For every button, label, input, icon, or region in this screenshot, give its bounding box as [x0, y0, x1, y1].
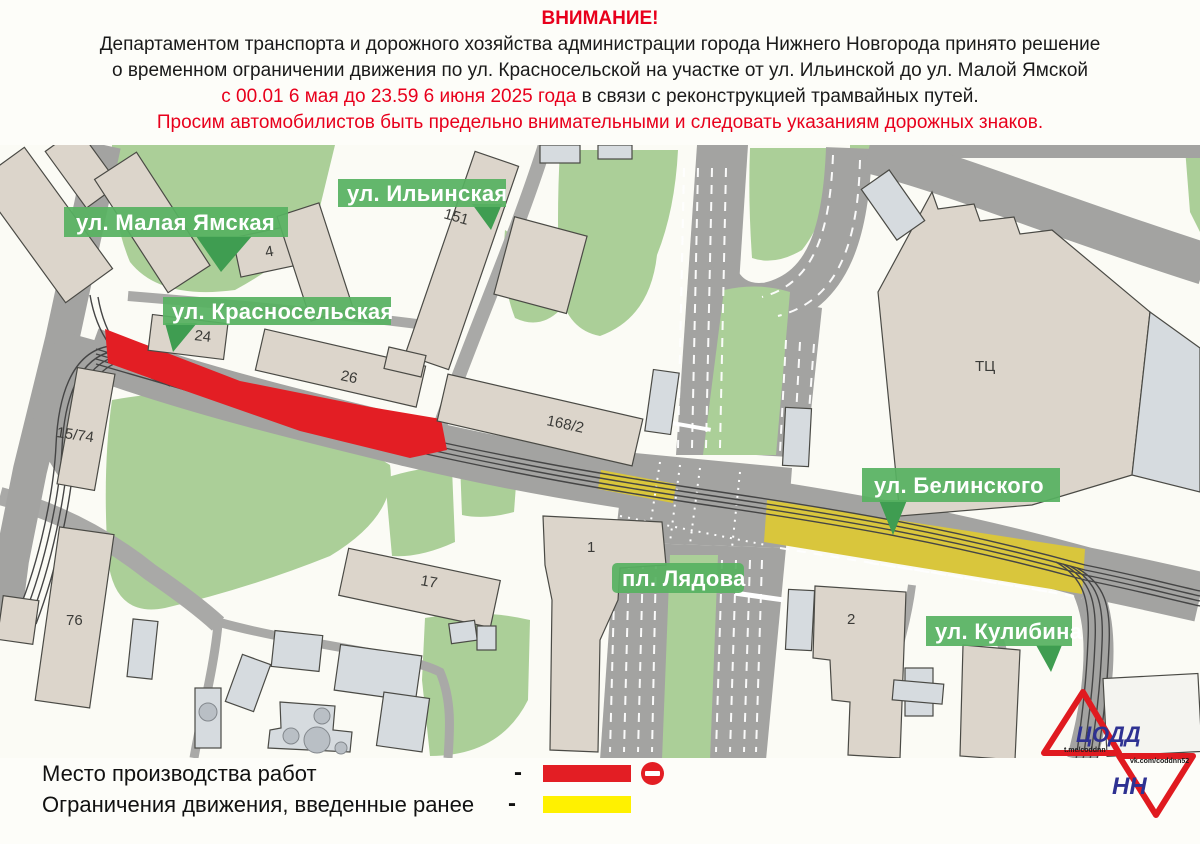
building	[271, 631, 323, 672]
logo-vk: vk.com/coddnn52	[1130, 758, 1189, 765]
legend-dash: -	[508, 790, 516, 818]
building-number-tc: ТЦ	[975, 358, 995, 375]
building	[540, 145, 580, 163]
legend-label-closure: Место производства работ	[42, 761, 317, 787]
building	[785, 589, 814, 650]
legend-swatch-closure	[543, 765, 631, 782]
logo-org-name: ЦОДД	[1076, 722, 1141, 747]
building-number: 24	[194, 327, 213, 346]
building	[960, 645, 1020, 760]
road-closure-map: 151 4 24 26 15/74 168/2 76 17 1 2 ТЦ ул.…	[0, 0, 1200, 844]
svg-text:пл. Лядова: пл. Лядова	[622, 566, 746, 591]
legend-dash: -	[514, 759, 522, 787]
svg-text:ул. Кулибина: ул. Кулибина	[935, 619, 1083, 644]
building-number: 1	[587, 539, 595, 556]
building	[477, 626, 496, 650]
building-number: 17	[419, 572, 438, 592]
no-entry-icon	[641, 762, 664, 785]
svg-text:ул. Малая Ямская: ул. Малая Ямская	[76, 210, 275, 235]
street-label-lyadova: пл. Лядова	[612, 563, 746, 593]
building	[598, 145, 632, 159]
logo-telegram: t.me/coddnn	[1064, 747, 1106, 754]
legend-label-restriction: Ограничения движения, введенные ранее	[42, 792, 474, 818]
svg-text:ул. Белинского: ул. Белинского	[874, 473, 1044, 498]
svg-text:ул. Красносельская: ул. Красносельская	[172, 299, 394, 324]
building	[783, 407, 812, 466]
building	[892, 680, 944, 704]
building	[449, 620, 478, 643]
legend-row-closure: Место производства работ -	[0, 761, 1200, 791]
building	[376, 692, 429, 752]
legend-swatch-restriction	[543, 796, 631, 813]
building	[0, 596, 39, 645]
building-number: 2	[847, 611, 855, 628]
building-number: 26	[339, 367, 359, 387]
svg-text:ул. Ильинская: ул. Ильинская	[347, 181, 508, 206]
codd-nn-logo: ЦОДД t.me/coddnn vk.com/coddnn52 НН	[1030, 680, 1200, 844]
logo-city: НН	[1112, 773, 1147, 800]
building	[127, 619, 158, 679]
legend-row-restriction: Ограничения движения, введенные ранее -	[0, 792, 1200, 822]
building-number: 76	[66, 612, 83, 629]
